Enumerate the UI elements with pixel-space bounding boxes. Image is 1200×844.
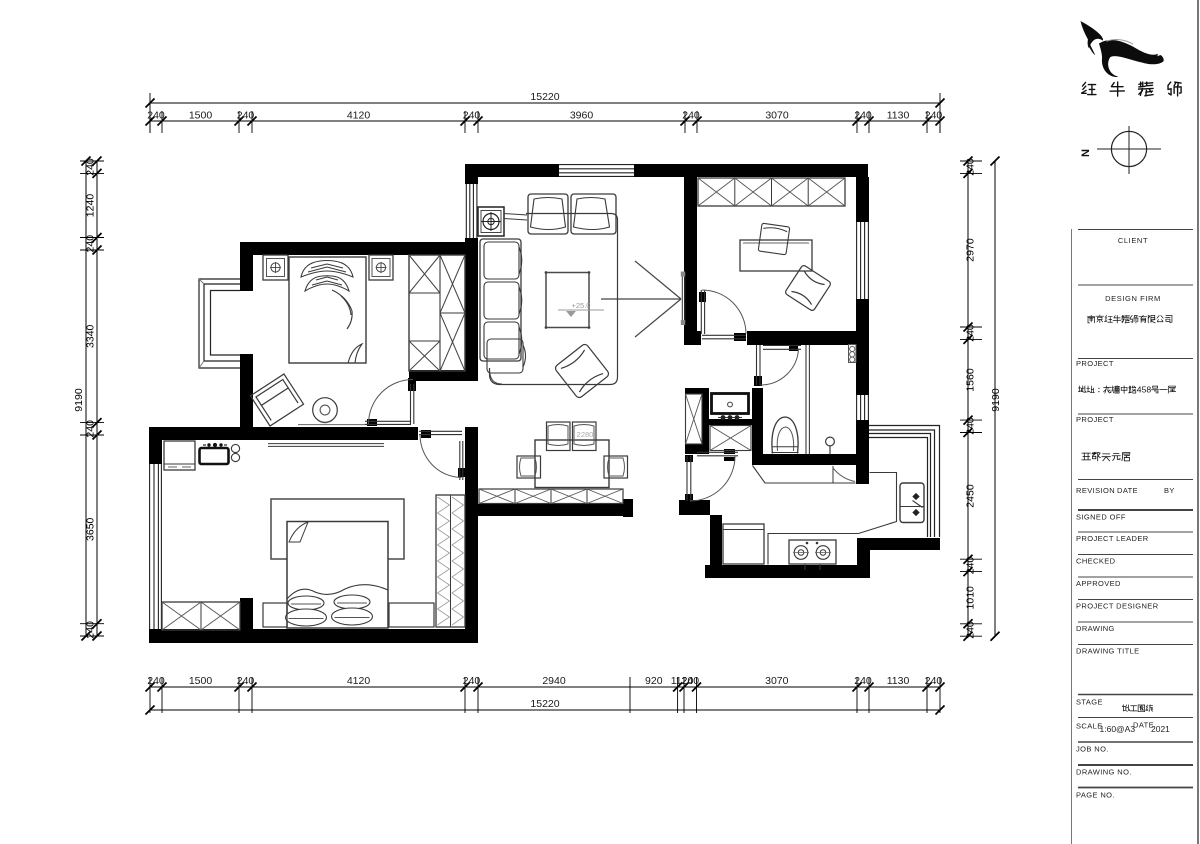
svg-text:240: 240 bbox=[85, 235, 97, 253]
svg-text:9190: 9190 bbox=[73, 388, 85, 412]
svg-text:2970: 2970 bbox=[965, 238, 977, 262]
svg-text:3070: 3070 bbox=[765, 110, 789, 122]
svg-text:SIGNED OFF: SIGNED OFF bbox=[1076, 513, 1126, 522]
svg-text:1560: 1560 bbox=[965, 368, 977, 392]
svg-text:REVISION: REVISION bbox=[1076, 486, 1115, 495]
svg-text:240: 240 bbox=[85, 420, 97, 438]
svg-text:9190: 9190 bbox=[990, 388, 1002, 412]
svg-text:4120: 4120 bbox=[347, 110, 371, 122]
svg-text:JOB NO.: JOB NO. bbox=[1076, 745, 1109, 754]
svg-text:DRAWING: DRAWING bbox=[1076, 624, 1115, 633]
svg-text:DATE: DATE bbox=[1117, 486, 1138, 495]
svg-text:APPROVED: APPROVED bbox=[1076, 579, 1121, 588]
svg-text:458: 458 bbox=[1137, 385, 1152, 395]
svg-text:1130: 1130 bbox=[887, 675, 910, 687]
svg-text:CHECKED: CHECKED bbox=[1076, 557, 1116, 566]
svg-text:240: 240 bbox=[682, 675, 700, 687]
svg-text:PROJECT: PROJECT bbox=[1076, 359, 1114, 368]
svg-text:STAGE: STAGE bbox=[1076, 698, 1103, 707]
svg-text:240: 240 bbox=[925, 110, 943, 122]
svg-text:1130: 1130 bbox=[887, 110, 910, 122]
svg-text:4120: 4120 bbox=[347, 675, 371, 687]
svg-text:15220: 15220 bbox=[530, 698, 559, 710]
svg-text:240: 240 bbox=[85, 158, 97, 176]
svg-text:PAGE NO.: PAGE NO. bbox=[1076, 791, 1115, 800]
svg-text:BY: BY bbox=[1164, 486, 1175, 495]
svg-text:240: 240 bbox=[147, 110, 165, 122]
svg-text:PROJECT: PROJECT bbox=[1076, 415, 1114, 424]
svg-text:240: 240 bbox=[965, 324, 977, 342]
svg-text:PROJECT LEADER: PROJECT LEADER bbox=[1076, 534, 1149, 543]
svg-text:1:60@A3: 1:60@A3 bbox=[1100, 724, 1136, 734]
svg-text:2021: 2021 bbox=[1151, 724, 1170, 734]
svg-text:2280: 2280 bbox=[577, 430, 594, 439]
svg-text:DESIGN FIRM: DESIGN FIRM bbox=[1105, 294, 1161, 303]
svg-text:1500: 1500 bbox=[189, 675, 213, 687]
svg-text:240: 240 bbox=[925, 675, 943, 687]
svg-text:3960: 3960 bbox=[570, 110, 594, 122]
svg-text:15220: 15220 bbox=[530, 91, 559, 103]
svg-text:N: N bbox=[1080, 149, 1092, 157]
svg-text:PROJECT DESIGNER: PROJECT DESIGNER bbox=[1076, 602, 1159, 611]
svg-text:240: 240 bbox=[965, 557, 977, 575]
svg-text:240: 240 bbox=[965, 417, 977, 435]
svg-text:1500: 1500 bbox=[189, 110, 213, 122]
svg-text:240: 240 bbox=[854, 110, 872, 122]
svg-text:240: 240 bbox=[147, 675, 165, 687]
svg-text:240: 240 bbox=[463, 110, 481, 122]
svg-text:240: 240 bbox=[965, 621, 977, 639]
svg-text:DRAWING NO.: DRAWING NO. bbox=[1076, 768, 1132, 777]
svg-text:+25.0: +25.0 bbox=[572, 301, 591, 310]
svg-text:1010: 1010 bbox=[965, 586, 977, 610]
svg-text:2940: 2940 bbox=[542, 675, 566, 687]
svg-text:240: 240 bbox=[85, 621, 97, 639]
svg-text:3070: 3070 bbox=[765, 675, 789, 687]
svg-text:240: 240 bbox=[463, 675, 481, 687]
svg-text:2450: 2450 bbox=[965, 484, 977, 508]
svg-text:920: 920 bbox=[645, 675, 663, 687]
svg-text:3650: 3650 bbox=[85, 517, 97, 541]
svg-text:DRAWING TITLE: DRAWING TITLE bbox=[1076, 647, 1140, 656]
svg-text:3340: 3340 bbox=[85, 324, 97, 348]
svg-text:240: 240 bbox=[682, 110, 700, 122]
svg-text:240: 240 bbox=[854, 675, 872, 687]
svg-text:CLIENT: CLIENT bbox=[1118, 236, 1148, 245]
svg-text:240: 240 bbox=[237, 110, 255, 122]
svg-text:240: 240 bbox=[965, 158, 977, 176]
svg-text:240: 240 bbox=[237, 675, 255, 687]
svg-text:1240: 1240 bbox=[85, 194, 97, 218]
